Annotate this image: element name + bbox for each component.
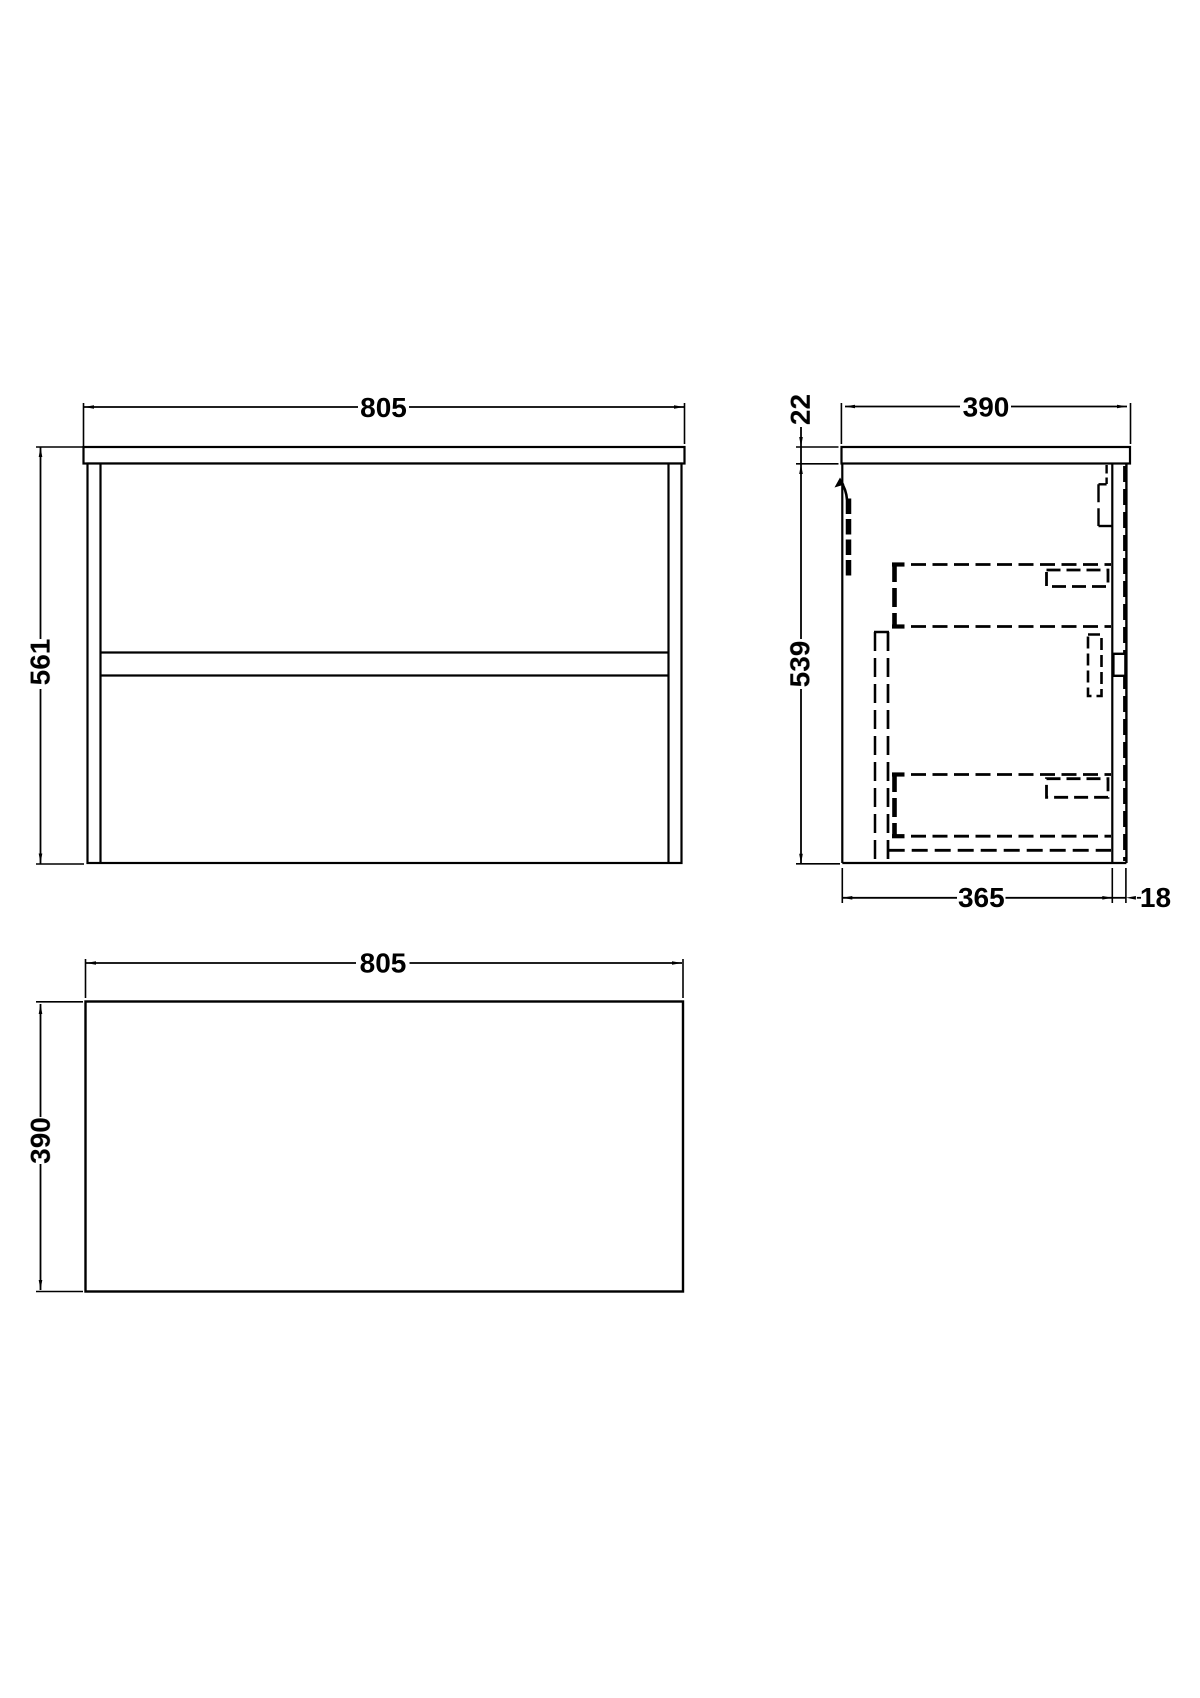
svg-text:18: 18 <box>1140 882 1171 913</box>
svg-text:390: 390 <box>963 391 1010 422</box>
svg-text:561: 561 <box>25 639 56 686</box>
svg-text:390: 390 <box>25 1117 56 1164</box>
svg-text:805: 805 <box>360 947 407 978</box>
svg-text:539: 539 <box>784 641 815 688</box>
svg-text:805: 805 <box>360 392 407 423</box>
svg-text:365: 365 <box>958 882 1005 913</box>
svg-text:22: 22 <box>785 394 816 425</box>
